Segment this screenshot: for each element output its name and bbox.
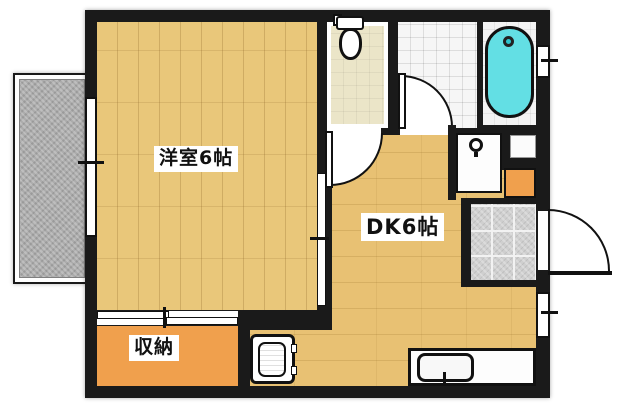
sliding-door-closet-tick — [163, 307, 166, 328]
genkan-bottom-wall — [461, 280, 536, 287]
bathtub-drain-icon — [503, 36, 514, 47]
wall-stub-left-of-pan — [448, 125, 456, 200]
washbasin-tap-upper — [291, 344, 297, 353]
sliding-door-panel — [166, 317, 238, 325]
window-bath-tick — [541, 59, 558, 62]
sliding-door-partition-tick — [310, 237, 329, 240]
toilet-icon — [339, 28, 362, 60]
kitchen-faucet-icon — [443, 372, 446, 386]
balcony-surface — [19, 79, 85, 278]
washbasin-tap-lower — [291, 366, 297, 375]
genkan-left-wall — [461, 204, 471, 287]
washroom-door-leaf — [398, 73, 406, 129]
sliding-door-closet — [97, 311, 238, 325]
entrance-door-leaf — [548, 271, 612, 275]
window-dk — [536, 292, 550, 338]
entry-wall-band — [502, 158, 536, 168]
window-balcony-tick — [78, 161, 104, 164]
sliding-door-panel — [97, 311, 169, 319]
storage-label: 収納 — [129, 335, 179, 361]
toilet-door-leaf — [325, 131, 333, 188]
floorplan-canvas: 洋室6帖 DK6帖 収納 — [0, 0, 630, 408]
genkan-tiles — [471, 204, 536, 280]
western-room-label: 洋室6帖 — [154, 146, 238, 172]
entry-cabinet — [510, 135, 536, 158]
washing-machine-drain-icon — [469, 138, 483, 152]
dk-label: DK6帖 — [361, 213, 444, 241]
entrance-door-swing — [548, 209, 610, 271]
shoe-cabinet — [504, 168, 536, 198]
window-balcony — [85, 97, 97, 237]
washbasin-bowl — [258, 342, 286, 377]
window-dk-tick — [541, 311, 558, 314]
washing-machine-drain-stem — [474, 152, 478, 157]
